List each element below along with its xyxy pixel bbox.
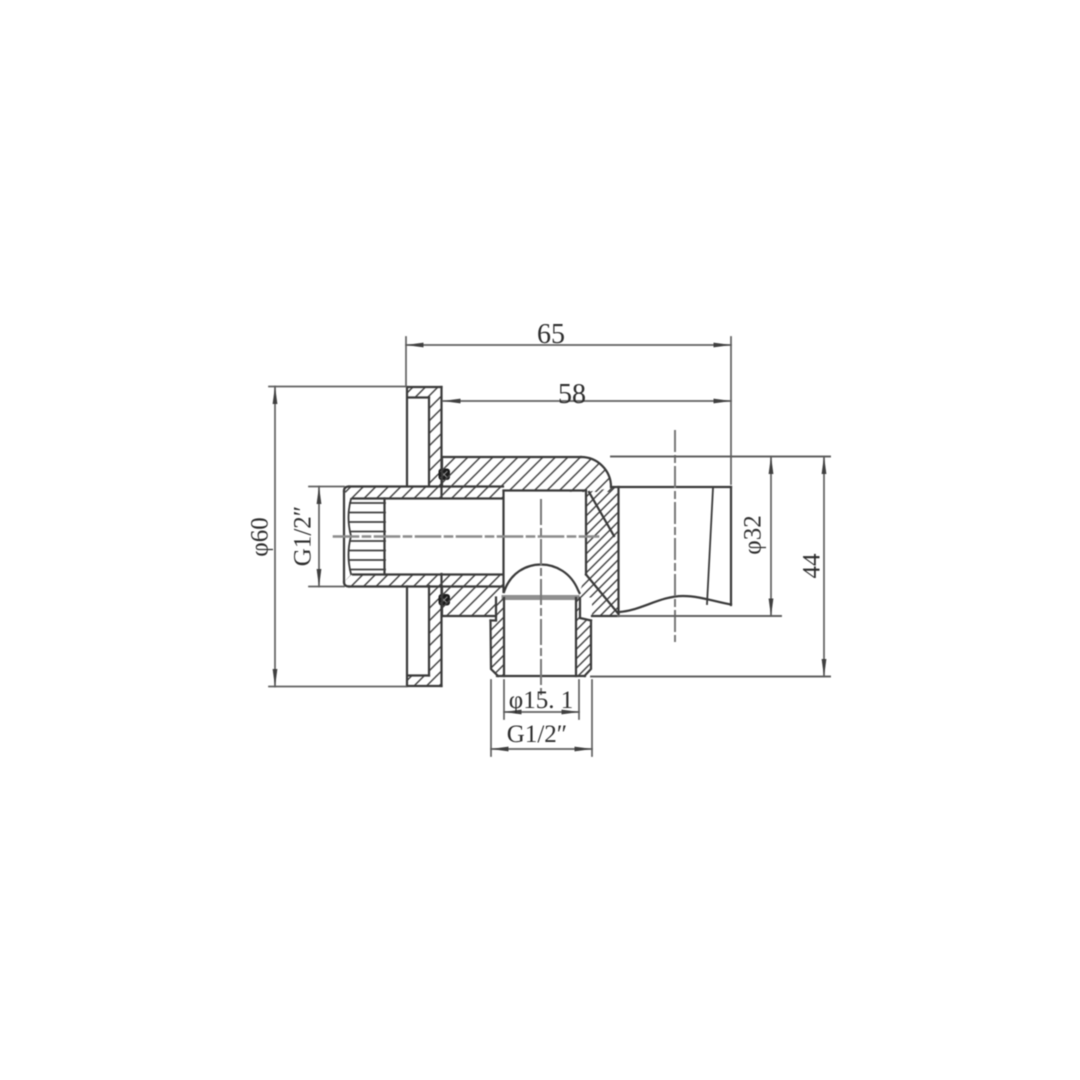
- svg-text:G1/2″: G1/2″: [507, 721, 567, 748]
- svg-text:φ60: φ60: [247, 517, 274, 556]
- svg-text:φ32: φ32: [740, 515, 767, 554]
- svg-text:44: 44: [799, 553, 826, 579]
- svg-text:58: 58: [558, 379, 586, 410]
- svg-text:φ15. 1: φ15. 1: [509, 687, 573, 714]
- svg-text:65: 65: [537, 319, 565, 350]
- svg-text:G1/2″: G1/2″: [290, 506, 317, 566]
